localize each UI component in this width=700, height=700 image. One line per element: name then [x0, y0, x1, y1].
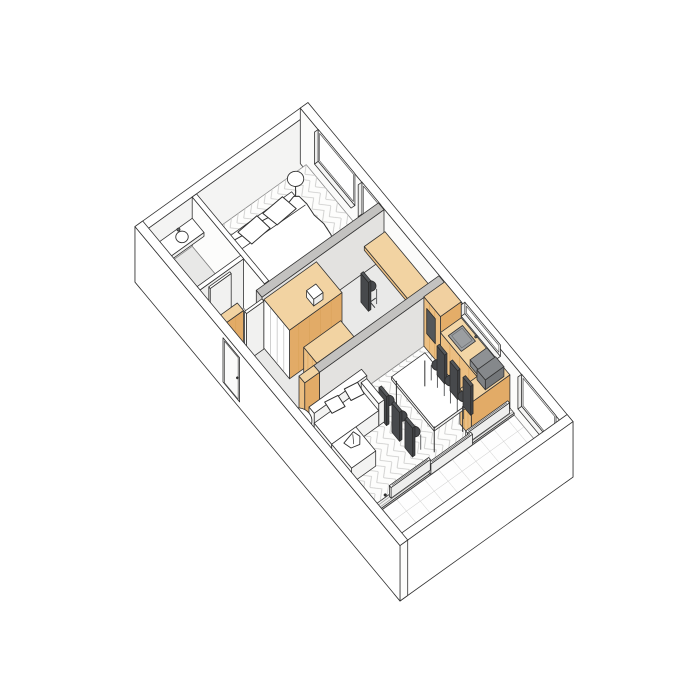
door-handle-dot: [384, 493, 387, 496]
axonometric-floor-plan-svg: [0, 0, 700, 700]
kitchen-faucet: [474, 335, 477, 338]
apartment-axonometric-figure: [0, 0, 700, 700]
entry-door-handle: [236, 377, 239, 380]
drawing-root: [135, 103, 573, 601]
